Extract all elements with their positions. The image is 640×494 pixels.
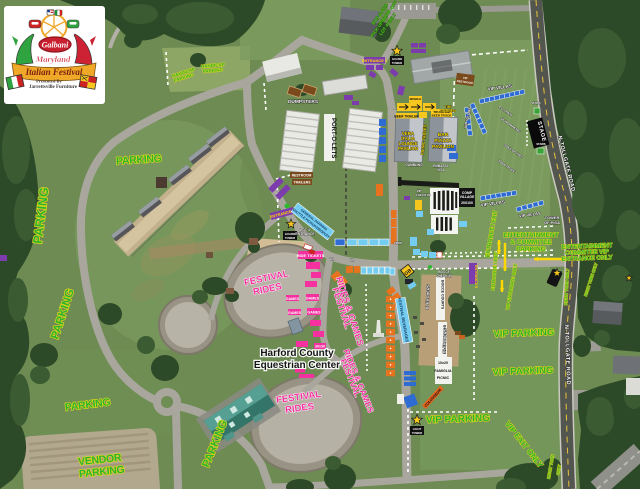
- svg-text:GARDEN: GARDEN: [440, 109, 456, 113]
- svg-text:STAIRS: STAIRS: [531, 101, 541, 105]
- svg-text:PORT-O-LETS: PORT-O-LETS: [330, 118, 336, 158]
- svg-text:PARKING: PARKING: [516, 246, 546, 253]
- svg-text:GAMES: GAMES: [307, 311, 321, 315]
- svg-text:Galbani: Galbani: [42, 41, 69, 50]
- svg-text:W1: W1: [330, 257, 335, 261]
- svg-text:TOWER: TOWER: [412, 431, 422, 435]
- svg-text:GAMBLING: GAMBLING: [405, 163, 423, 167]
- svg-text:PREP: PREP: [394, 241, 402, 245]
- svg-text:VISA: VISA: [437, 168, 445, 172]
- svg-text:VILLAGE: VILLAGE: [460, 195, 475, 199]
- svg-text:TRAILERS: TRAILERS: [294, 181, 312, 185]
- svg-text:ENTRANCE 5: ENTRANCE 5: [474, 265, 478, 288]
- svg-text:GAMES: GAMES: [286, 297, 300, 301]
- svg-text:MOBILE: MOBILE: [410, 97, 422, 101]
- svg-text:BAR: BAR: [438, 132, 449, 138]
- svg-text:20X100: 20X100: [461, 201, 473, 205]
- svg-text:TOWER: TOWER: [392, 61, 402, 65]
- svg-text:Presented By: Presented By: [36, 79, 63, 84]
- svg-text:VIP PARKING: VIP PARKING: [493, 327, 554, 340]
- svg-text:ENTRANCE 1: ENTRANCE 1: [362, 58, 388, 63]
- svg-text:TOWER: TOWER: [285, 236, 295, 240]
- svg-text:10x20: 10x20: [438, 361, 448, 365]
- svg-text:STAIRS: STAIRS: [536, 142, 546, 146]
- svg-text:GAMES: GAMES: [306, 297, 320, 301]
- svg-text:OF PISA: OF PISA: [544, 220, 560, 225]
- svg-text:BOCCE COURTS: BOCCE COURTS: [441, 280, 445, 310]
- svg-text:PIAZZA: PIAZZA: [434, 138, 452, 144]
- svg-text:VIP PARKING: VIP PARKING: [492, 365, 553, 378]
- svg-text:W2: W2: [350, 258, 355, 262]
- svg-text:FAMIGLIA: FAMIGLIA: [434, 369, 452, 373]
- svg-text:& COMMITEE: & COMMITEE: [510, 239, 552, 246]
- svg-text:Italian Festival: Italian Festival: [25, 67, 83, 77]
- svg-text:Maryland: Maryland: [35, 54, 71, 64]
- svg-text:PICNIC: PICNIC: [437, 376, 450, 380]
- svg-text:CHECK-IN: CHECK-IN: [436, 274, 452, 278]
- svg-text:BEER TRUCK: BEER TRUCK: [432, 114, 453, 118]
- svg-text:DUMPSTERS: DUMPSTERS: [288, 99, 319, 105]
- svg-text:Harford County: Harford County: [260, 348, 334, 359]
- svg-text:VIP PARKING: VIP PARKING: [426, 413, 491, 426]
- svg-text:Jarrettsville Furniture: Jarrettsville Furniture: [29, 85, 78, 90]
- svg-text:RESTROOM: RESTROOM: [292, 174, 312, 178]
- svg-text:CHECK-IN: CHECK-IN: [416, 193, 431, 197]
- svg-text:BEER TRAILER: BEER TRAILER: [394, 114, 419, 118]
- svg-text:PAVILION: PAVILION: [398, 146, 418, 151]
- svg-text:PAVILION: PAVILION: [432, 144, 454, 150]
- svg-text:ENTRANCE: ENTRANCE: [295, 232, 315, 236]
- svg-text:ENTERTAINMENT: ENTERTAINMENT: [503, 232, 558, 239]
- svg-text:GAMES: GAMES: [288, 311, 302, 315]
